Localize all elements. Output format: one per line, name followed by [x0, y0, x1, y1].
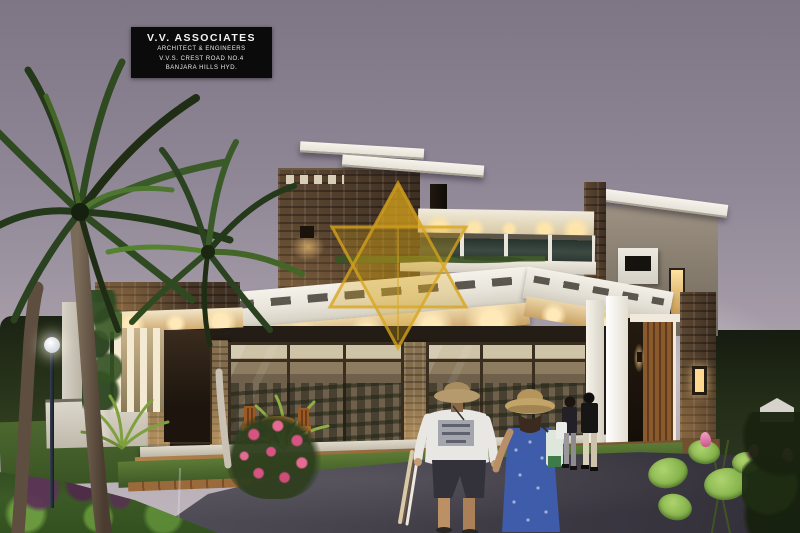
entrance-sconce-icon — [637, 352, 642, 362]
watermark-apex — [374, 183, 422, 227]
palm-trees — [0, 0, 320, 533]
banner-line-3: BANJARA HILLS HYD. — [134, 64, 269, 73]
woman-walking — [493, 389, 564, 532]
pedestrians — [390, 380, 630, 533]
palm-trunk — [18, 288, 37, 533]
right-window-glass — [625, 256, 651, 271]
garden-lamp-pole — [50, 352, 54, 508]
wood-slat-door — [643, 322, 676, 444]
palm-trunk-small — [219, 372, 228, 465]
architectural-rendering: V.V. ASSOCIATES ARCHITECT & ENGINEERS V.… — [0, 0, 800, 533]
entrance-lintel — [630, 314, 684, 322]
couple-man — [581, 393, 598, 472]
gold-triangle-watermark — [300, 160, 480, 360]
banner-title: V.V. ASSOCIATES — [134, 32, 269, 44]
corner-foliage — [742, 412, 800, 533]
pink-rose-bush — [632, 468, 728, 533]
banner-line-1: ARCHITECT & ENGINEERS — [134, 45, 269, 54]
garden-lamp-globe-icon — [44, 337, 60, 353]
architect-banner: V.V. ASSOCIATES ARCHITECT & ENGINEERS V.… — [131, 27, 272, 78]
man-walking — [400, 382, 499, 533]
palm-fronds-secondary — [108, 142, 302, 345]
small-lit-window — [692, 366, 707, 395]
banner-line-2: V.V.S. CREST ROAD NO.4 — [134, 55, 269, 64]
